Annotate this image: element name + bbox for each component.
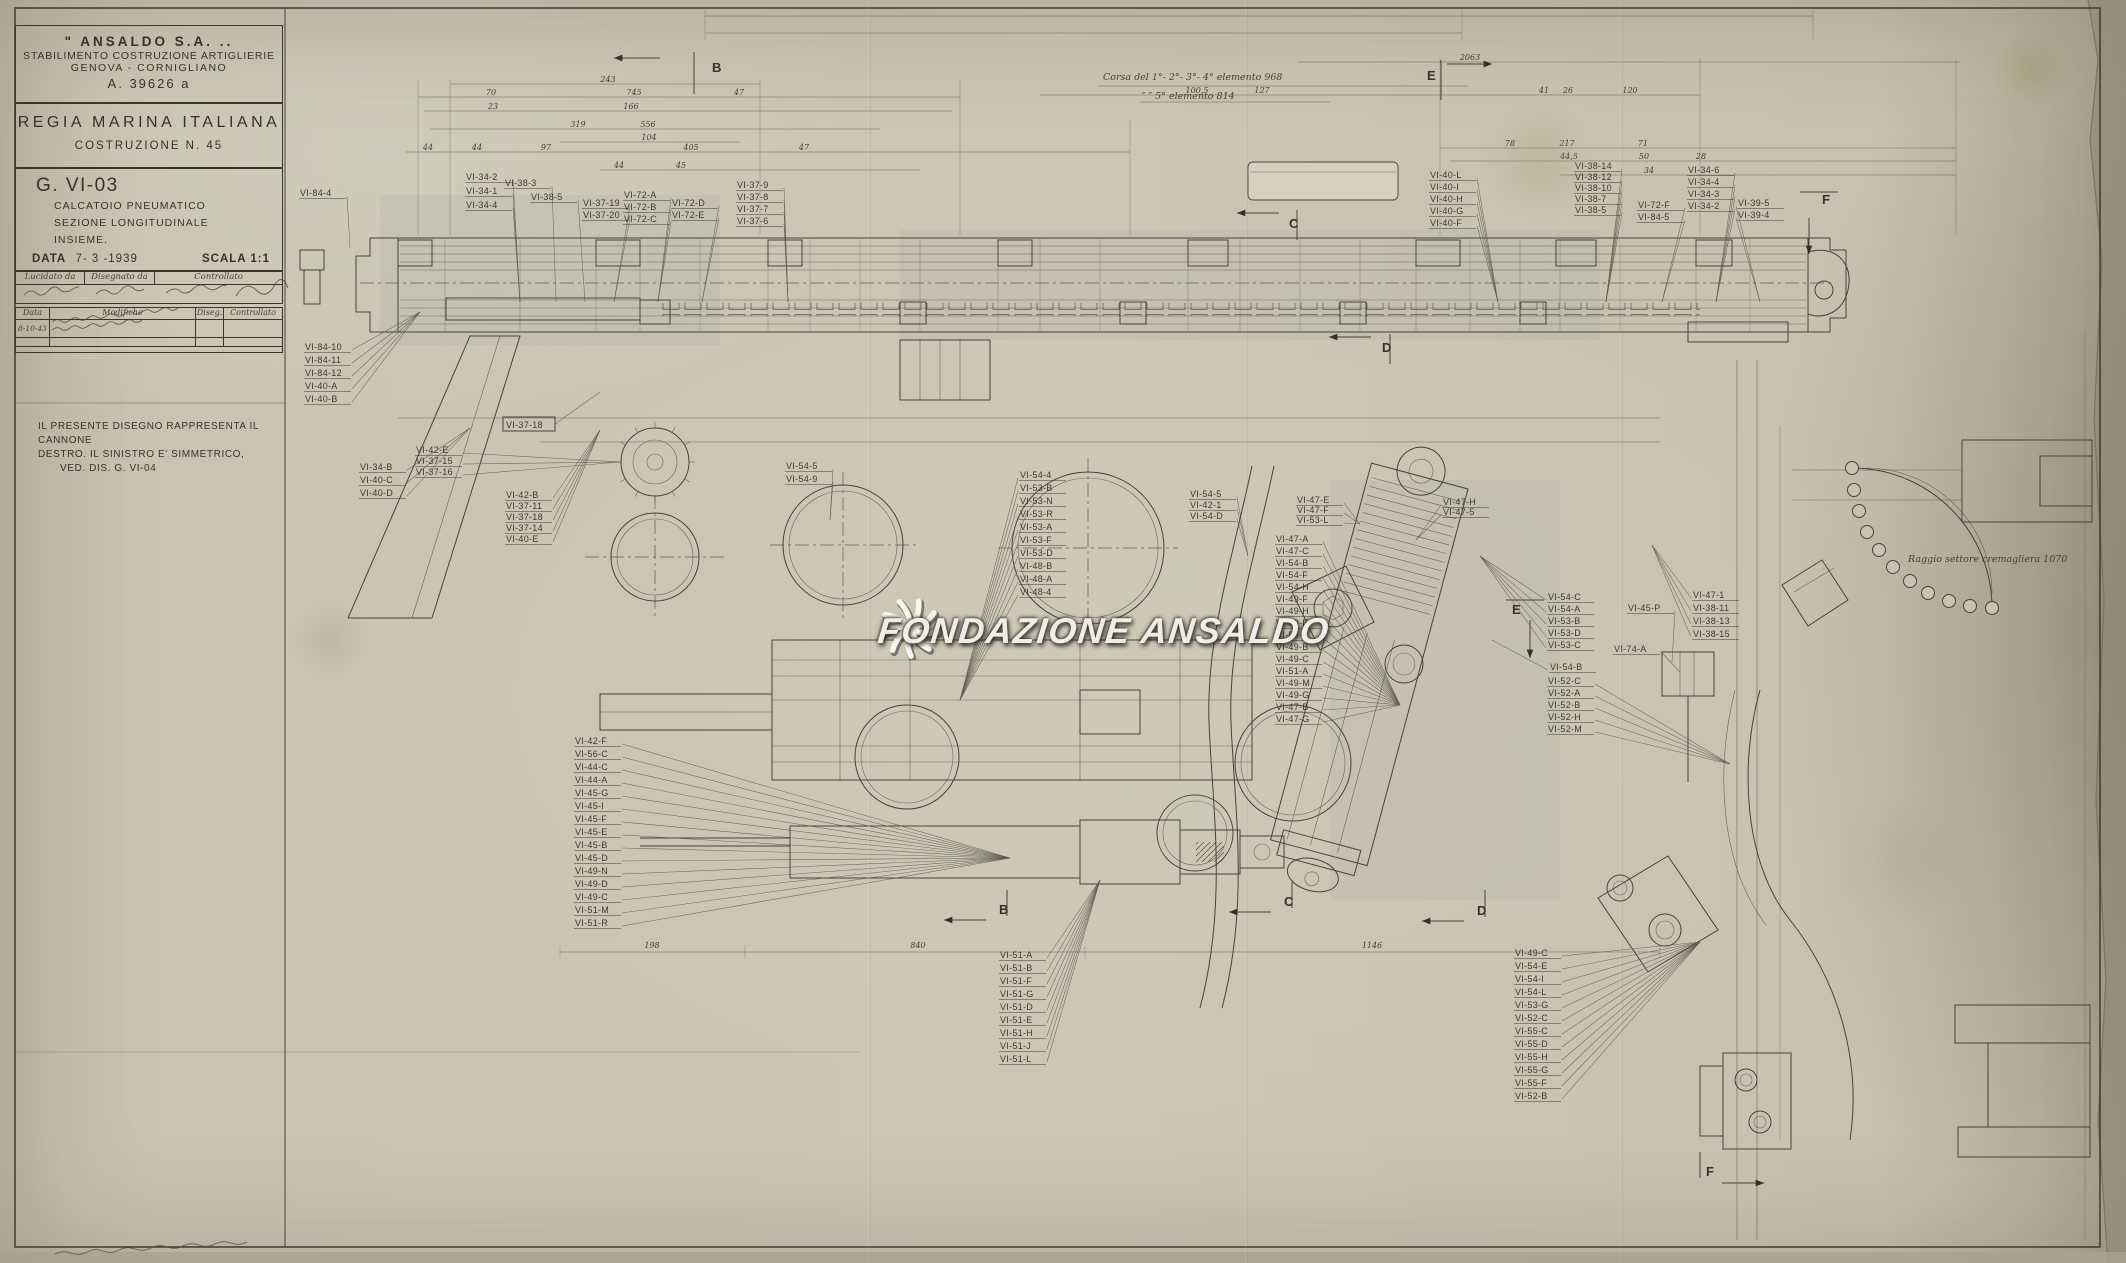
part-label: VI-53-G <box>1515 1000 1549 1010</box>
title-block-company: " ANSALDO S.A. .. STABILIMENTO COSTRUZIO… <box>15 25 283 103</box>
part-label: VI-38-14 <box>1575 161 1612 171</box>
part-label: VI-51-D <box>1000 1002 1033 1012</box>
sig-header-lucidato: Lucidato da <box>16 272 85 284</box>
part-label: VI-53-C <box>1548 640 1581 650</box>
dimension-value: 44 <box>422 143 433 152</box>
dimension-value: 2063 <box>1459 53 1480 62</box>
part-label: VI-49-F <box>1276 594 1308 604</box>
part-label: VI-84-10 <box>305 342 342 352</box>
part-label: VI-38-13 <box>1693 616 1730 626</box>
part-label: VI-37-11 <box>506 501 542 511</box>
label-stack-s32: VI-84-4 <box>299 188 350 248</box>
dimension-value: 71 <box>1638 139 1648 148</box>
part-label: VI-54-I <box>1515 974 1544 984</box>
part-label: VI-54-4 <box>1020 470 1052 480</box>
part-label: VI-72-E <box>672 210 705 220</box>
rev-row-note <box>50 320 196 337</box>
part-label: VI-51-H <box>1000 1028 1033 1038</box>
part-label: VI-34-4 <box>1688 177 1720 187</box>
part-label: VI-37-14 <box>506 523 543 533</box>
part-label: VI-53-B <box>1020 483 1053 493</box>
part-label: VI-54-9 <box>786 474 818 484</box>
part-label: VI-45-P <box>1628 603 1661 613</box>
dimension-value: 45 <box>675 161 686 170</box>
part-label: VI-47-5 <box>1443 507 1475 517</box>
dimension-value: 23 <box>487 102 498 111</box>
rev-header-data: Data <box>16 308 50 319</box>
part-label: VI-84-11 <box>305 355 341 365</box>
part-label: VI-47-A <box>1276 534 1309 544</box>
part-label: VI-42-E <box>416 445 449 455</box>
dimension-value: 100,5 <box>1186 86 1209 95</box>
part-label: VI-34-2 <box>1688 201 1720 211</box>
part-label: VI-72-B <box>624 202 657 212</box>
part-label: VI-40-I <box>1430 182 1459 192</box>
part-label: VI-47-H <box>1443 497 1476 507</box>
part-label: VI-40-E <box>506 534 539 544</box>
part-label: VI-40-L <box>1430 170 1462 180</box>
dimension-value: 44 <box>613 161 624 170</box>
dimension-value: 319 <box>570 120 585 129</box>
part-label: VI-45-I <box>575 801 604 811</box>
part-label: VI-39-4 <box>1738 210 1770 220</box>
part-label: VI-54-A <box>1548 604 1581 614</box>
company-location: GENOVA - CORNIGLIANO <box>16 62 282 74</box>
part-label: VI-54-E <box>1515 961 1548 971</box>
part-label: VI-51-B <box>1000 963 1033 973</box>
part-label: VI-40-C <box>360 475 393 485</box>
part-label: VI-34-2 <box>466 172 498 182</box>
part-label: VI-55-C <box>1515 1026 1548 1036</box>
handwritten-annotation: Corsa del 1°- 2°- 3°- 4° elemento 968 <box>1103 72 1282 83</box>
label-stack-s16: VI-42-EVI-37-15VI-37-16 <box>415 445 620 478</box>
title-block-subject: G. VI-03 CALCATOIO PNEUMATICO SEZIONE LO… <box>15 168 283 271</box>
part-label: VI-51-R <box>575 918 608 928</box>
dimension-value: 44,5 <box>1559 152 1578 161</box>
part-label: VI-53-R <box>1020 509 1053 519</box>
dimension-value: 26 <box>1562 86 1573 95</box>
section-mark-F: F <box>1800 192 1838 254</box>
dimension-value: 47 <box>733 88 745 97</box>
part-label: VI-52-A <box>1548 688 1581 698</box>
part-label: VI-49-C <box>1515 948 1548 958</box>
label-stack-s10: VI-72-FVI-84-5 <box>1637 200 1685 302</box>
part-label: VI-45-B <box>575 840 608 850</box>
part-label: VI-51-A <box>1276 666 1309 676</box>
company-division: STABILIMENTO COSTRUZIONE ARTIGLIERIE <box>16 50 282 62</box>
part-label: VI-40-D <box>360 488 393 498</box>
dimension-value: 78 <box>1505 139 1515 148</box>
dimension-value: 41 <box>1538 86 1549 95</box>
svg-text:E: E <box>1427 68 1436 83</box>
part-label: VI-40-H <box>1430 194 1463 204</box>
dimension-value: 97 <box>541 143 552 152</box>
part-label: VI-53-A <box>1020 522 1053 532</box>
part-label: VI-49-M <box>1276 678 1310 688</box>
part-label: VI-47-C <box>1276 546 1309 556</box>
part-label: VI-52-C <box>1515 1013 1548 1023</box>
part-label: VI-42-B <box>506 490 539 500</box>
note-line-1: IL PRESENTE DISEGNO RAPPRESENTA IL CANNO… <box>38 420 273 448</box>
label-stack-s11: VI-34-6VI-34-4VI-34-3VI-34-2 <box>1687 165 1735 302</box>
part-label: VI-45-G <box>575 788 609 798</box>
part-label: VI-40-A <box>305 381 338 391</box>
part-label: VI-55-H <box>1515 1052 1548 1062</box>
part-label: VI-42-F <box>575 736 607 746</box>
part-label: VI-45-E <box>575 827 608 837</box>
part-label: VI-40-B <box>305 394 338 404</box>
part-label: VI-51-A <box>1000 950 1033 960</box>
dimension-value: 47 <box>798 143 810 152</box>
part-label: VI-54-5 <box>1190 489 1222 499</box>
part-label: VI-53-L <box>1297 515 1329 525</box>
dimension-value: 34 <box>1644 166 1654 175</box>
drawing-note: IL PRESENTE DISEGNO RAPPRESENTA IL CANNO… <box>38 420 273 476</box>
drawing-code: A. 39626 a <box>16 76 282 91</box>
part-label: VI-84-4 <box>300 188 332 198</box>
label-stack-s27: VI-74-A <box>1613 644 1680 672</box>
part-label: VI-55-G <box>1515 1065 1549 1075</box>
dimension-value: 104 <box>641 133 656 142</box>
handwritten-annotation: Raggio settore cremagliera 1070 <box>1907 554 2067 565</box>
scale-label: SCALA <box>202 253 246 265</box>
part-label: VI-49-B <box>1276 642 1309 652</box>
part-label: VI-37-7 <box>737 204 769 214</box>
part-label: VI-54-B <box>1276 558 1309 568</box>
dimension-value: 745 <box>626 88 641 97</box>
company-name: " ANSALDO S.A. .. <box>16 34 282 49</box>
dimension-value: 243 <box>599 75 615 84</box>
part-label: VI-38-7 <box>1575 194 1607 204</box>
signature-table: Lucidato da Disegnato da Controllato <box>15 271 283 304</box>
sig-header-controllato: Controllato <box>155 272 282 284</box>
part-label: VI-37-6 <box>737 216 769 226</box>
part-label: VI-47-E <box>1297 495 1330 505</box>
part-label: VI-34-3 <box>1688 189 1720 199</box>
sig-header-disegnato: Disegnato da <box>85 272 155 284</box>
dimension-value: 217 <box>1558 139 1575 148</box>
part-label: VI-37-20 <box>583 210 620 220</box>
part-label: VI-49-E <box>1276 618 1309 628</box>
revision-table: Data Modifiche Diseg. Controllato 8-10-4… <box>15 307 283 353</box>
part-label: VI-37-16 <box>416 467 453 477</box>
part-label: VI-51-J <box>1000 1041 1031 1051</box>
date-label: DATA <box>32 253 66 265</box>
label-stack-s28: VI-47-1VI-38-11VI-38-13VI-38-15 <box>1652 545 1739 640</box>
part-label: VI-38-11 <box>1693 603 1729 613</box>
part-label: VI-54-H <box>1276 582 1309 592</box>
part-label: VI-38-10 <box>1575 183 1612 193</box>
part-label: VI-49-N <box>575 866 608 876</box>
part-label: VI-52-M <box>1548 724 1582 734</box>
part-label: VI-51-E <box>1000 1015 1033 1025</box>
part-label: VI-49-H <box>1276 606 1309 616</box>
rev-header-controllato: Controllato <box>224 308 282 319</box>
part-label: VI-34-6 <box>1688 165 1720 175</box>
svg-text:F: F <box>1706 1164 1714 1179</box>
part-label: VI-54-F <box>1276 570 1308 580</box>
part-label: VI-37-8 <box>737 192 769 202</box>
part-label: VI-84-5 <box>1638 212 1670 222</box>
rev-header-diseg: Diseg. <box>196 308 224 319</box>
part-label: VI-72-F <box>1638 200 1670 210</box>
date-value: 7- 3 -1939 <box>75 253 137 265</box>
part-label: VI-44-A <box>575 775 608 785</box>
dimension-value: 840 <box>910 941 925 950</box>
part-label: VI-40-G <box>1430 206 1464 216</box>
section-mark-F: F <box>1700 1152 1764 1186</box>
dimension-value: 44 <box>471 143 482 152</box>
dimension-value: 405 <box>682 143 698 152</box>
part-label: VI-54-C <box>1548 592 1581 602</box>
part-label: VI-34-4 <box>466 200 498 210</box>
part-label: VI-53-B <box>1548 616 1581 626</box>
part-label: VI-52-H <box>1548 712 1581 722</box>
part-label: VI-51-F <box>1000 976 1032 986</box>
section-mark-C: C <box>1229 882 1294 915</box>
part-label: VI-38-3 <box>505 178 537 188</box>
subject-line-3: INSIEME. <box>54 234 282 246</box>
part-label: VI-48-A <box>1020 574 1053 584</box>
label-stack-s29: VI-42-FVI-56-CVI-44-CVI-44-AVI-45-GVI-45… <box>574 736 1010 929</box>
part-label: VI-38-15 <box>1693 629 1730 639</box>
label-stack-s30: VI-51-AVI-51-BVI-51-FVI-51-GVI-51-DVI-51… <box>999 880 1100 1065</box>
part-label: VI-37-18 <box>506 512 543 522</box>
part-label: VI-53-D <box>1020 548 1053 558</box>
dimension-value: 50 <box>1639 152 1649 161</box>
part-label: VI-52-B <box>1515 1091 1548 1101</box>
part-label: VI-45-F <box>575 814 607 824</box>
torn-paper-edge <box>2088 0 2126 1263</box>
subject-line-2: SEZIONE LONGITUDINALE <box>54 217 282 229</box>
rev-header-modifiche: Modifiche <box>50 308 196 319</box>
construction-number: COSTRUZIONE N. 45 <box>16 140 282 152</box>
part-label: VI-53-F <box>1020 535 1052 545</box>
part-label: VI-49-C <box>1276 654 1309 664</box>
part-label: VI-72-C <box>624 214 657 224</box>
part-label: VI-72-A <box>624 190 657 200</box>
label-stack-s15: VI-42-BVI-37-11VI-37-18VI-37-14VI-40-E <box>505 430 600 545</box>
part-label: VI-38-5 <box>1575 205 1607 215</box>
part-label: VI-52-C <box>1548 676 1581 686</box>
part-label: VI-48-4 <box>1020 587 1052 597</box>
part-label: VI-54-B <box>1550 662 1583 672</box>
label-stack-s31: VI-49-CVI-54-EVI-54-IVI-54-LVI-53-GVI-52… <box>1514 942 1700 1102</box>
part-label: VI-84-12 <box>305 368 342 378</box>
dimension-value: 556 <box>640 120 655 129</box>
part-label: VI-49-D <box>575 879 608 889</box>
mount-side-structure <box>1598 322 2092 1240</box>
note-line-2: DESTRO. IL SINISTRO E' SIMMETRICO, <box>38 448 273 462</box>
part-label: VI-34-B <box>360 462 393 472</box>
part-label: VI-53-N <box>1020 496 1053 506</box>
label-stack-s17: VI-54-5VI-54-9 <box>785 461 833 520</box>
part-label: VI-56-C <box>575 749 608 759</box>
part-label: VI-55-F <box>1515 1078 1547 1088</box>
label-stack-s25: VI-52-CVI-52-AVI-52-BVI-52-HVI-52-M <box>1547 676 1730 764</box>
label-stack-s7: VI-37-9VI-37-8VI-37-7VI-37-6 <box>736 180 788 302</box>
part-label: VI-55-D <box>1515 1039 1548 1049</box>
label-stack-s12: VI-39-5VI-39-4 <box>1736 198 1784 302</box>
subject-line-1: CALCATOIO PNEUMATICO <box>54 200 282 212</box>
part-label: VI-54-L <box>1515 987 1547 997</box>
part-label: VI-38-12 <box>1575 172 1612 182</box>
part-label: VI-37-9 <box>737 180 769 190</box>
part-label: VI-52-B <box>1548 700 1581 710</box>
drawing-canvas: Corsa del 1°- 2°- 3°- 4° elemento 968″ ″… <box>0 0 2126 1263</box>
part-label: VI-51-L <box>1000 1054 1032 1064</box>
part-label: VI-34-1 <box>466 186 498 196</box>
drawing-number: G. VI-03 <box>36 175 282 197</box>
part-label: VI-47-B <box>1276 702 1309 712</box>
part-label: VI-54-D <box>1190 511 1223 521</box>
part-label: VI-37-15 <box>416 456 453 466</box>
svg-text:F: F <box>1822 192 1830 207</box>
part-label: VI-74-A <box>1614 644 1647 654</box>
rev-row-date: 8-10-43 <box>16 320 50 337</box>
part-label: VI-47-G <box>1276 714 1310 724</box>
part-label: VI-51-G <box>1000 989 1034 999</box>
authority-name: REGIA MARINA ITALIANA <box>16 114 282 132</box>
dimension-value: 28 <box>1695 152 1706 161</box>
part-label: VI-44-C <box>575 762 608 772</box>
svg-text:B: B <box>712 60 721 75</box>
dimension-value: 198 <box>644 941 659 950</box>
part-label: VI-39-5 <box>1738 198 1770 208</box>
note-line-3: VED. DIS. G. VI-04 <box>60 462 273 476</box>
section-mark-B: B <box>944 890 1008 923</box>
section-mark-E: E <box>1427 60 1492 100</box>
part-label: VI-45-D <box>575 853 608 863</box>
part-label: VI-54-5 <box>786 461 818 471</box>
part-label: VI-47-1 <box>1693 590 1725 600</box>
dimension-value: 70 <box>486 88 496 97</box>
part-label: VI-72-D <box>672 198 705 208</box>
part-label: VI-37-19 <box>583 198 620 208</box>
part-label: VI-37-18 <box>506 420 543 430</box>
dimension-value: 1146 <box>1362 941 1382 950</box>
scale-value: 1:1 <box>250 253 270 265</box>
part-label: VI-42-1 <box>1190 500 1222 510</box>
label-stack-s18: VI-54-4VI-53-BVI-53-NVI-53-RVI-53-AVI-53… <box>960 470 1066 700</box>
dimension-value: 166 <box>623 102 638 111</box>
dimension-value: 127 <box>1254 86 1270 95</box>
part-label: VI-38-5 <box>531 192 563 202</box>
part-label: VI-49-G <box>1276 690 1310 700</box>
part-label: VI-40-F <box>1430 218 1462 228</box>
part-label: VI-48-B <box>1020 561 1053 571</box>
title-block-authority: REGIA MARINA ITALIANA COSTRUZIONE N. 45 <box>15 103 283 168</box>
part-label: VI-51-M <box>575 905 609 915</box>
blank-plate <box>1248 162 1398 200</box>
part-label: VI-55-A <box>1276 630 1309 640</box>
part-label: VI-47-F <box>1297 505 1329 515</box>
dimension-value: 120 <box>1622 86 1637 95</box>
part-label: VI-53-D <box>1548 628 1581 638</box>
part-label: VI-49-C <box>575 892 608 902</box>
